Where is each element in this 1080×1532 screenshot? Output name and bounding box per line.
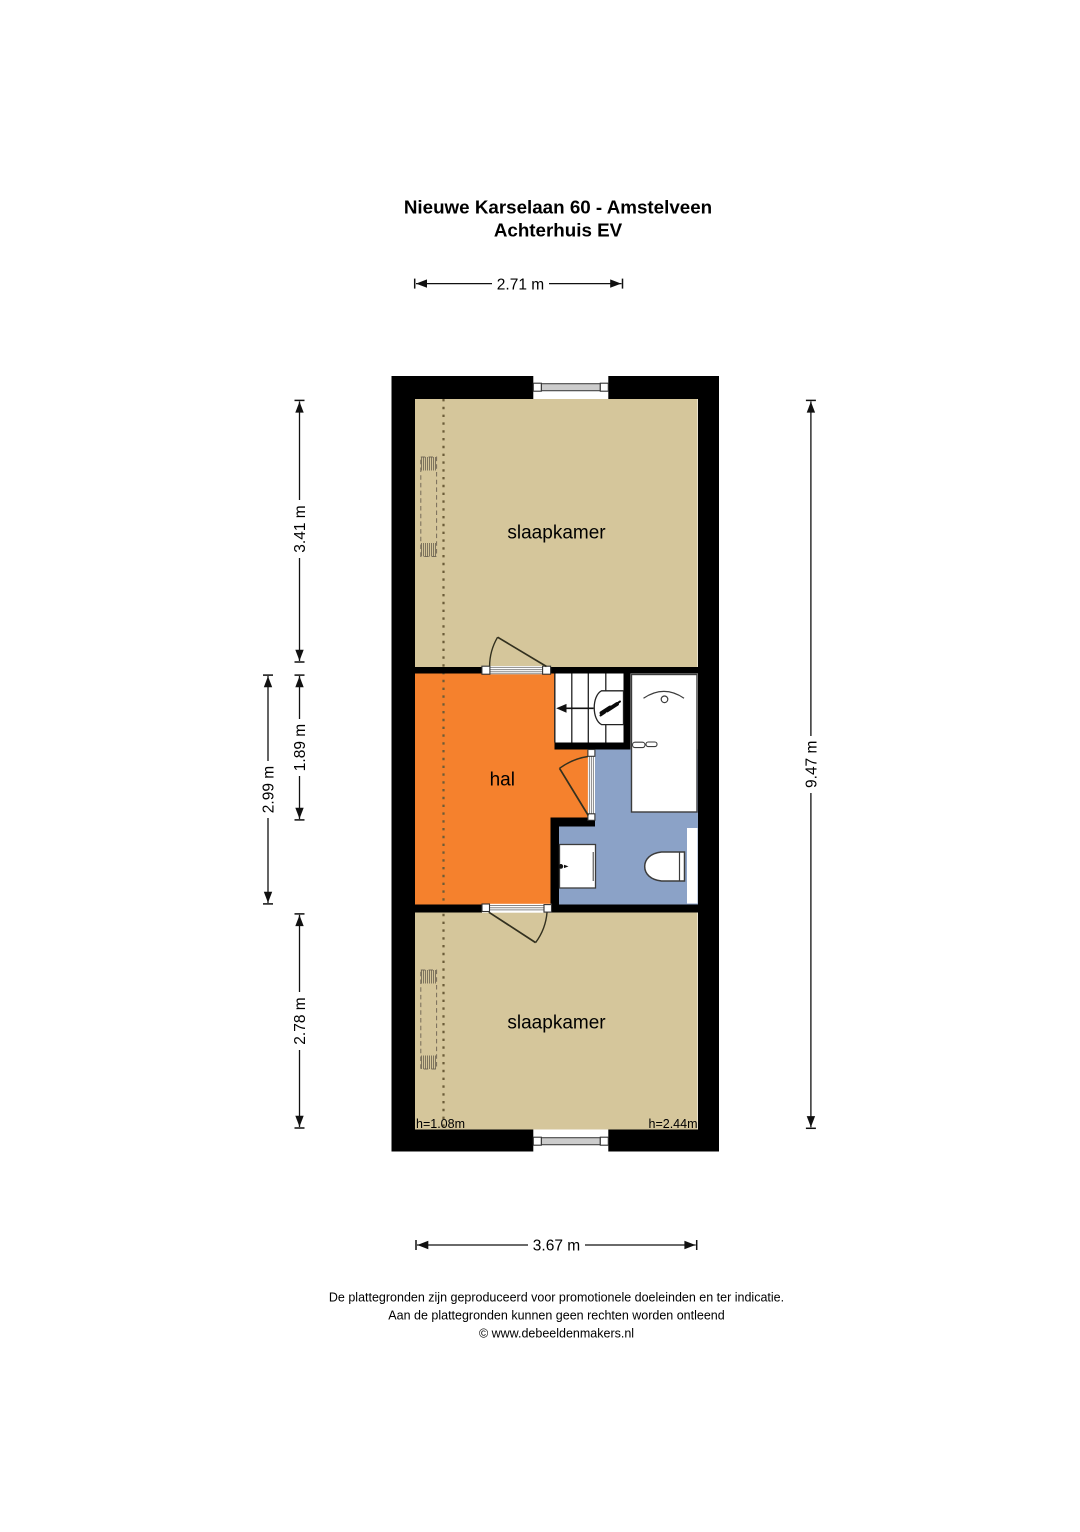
svg-text:© www.debeeldenmakers.nl: © www.debeeldenmakers.nl	[479, 1327, 634, 1341]
svg-text:3.67 m: 3.67 m	[533, 1238, 580, 1255]
svg-text:9.47 m: 9.47 m	[803, 741, 820, 788]
svg-text:h=2.44m: h=2.44m	[649, 1117, 698, 1131]
svg-text:hal: hal	[490, 770, 515, 791]
svg-text:2.71 m: 2.71 m	[497, 276, 544, 293]
svg-text:Nieuwe Karselaan 60 - Amstelve: Nieuwe Karselaan 60 - Amstelveen	[404, 197, 712, 218]
svg-text:slaapkamer: slaapkamer	[507, 1013, 606, 1034]
svg-text:Aan de plattegronden kunnen ge: Aan de plattegronden kunnen geen rechten…	[388, 1309, 724, 1323]
svg-text:1.89 m: 1.89 m	[292, 724, 309, 771]
svg-text:De plattegronden zijn geproduc: De plattegronden zijn geproduceerd voor …	[329, 1291, 784, 1305]
svg-text:2.99 m: 2.99 m	[261, 766, 278, 813]
svg-text:Achterhuis EV: Achterhuis EV	[494, 220, 623, 241]
svg-text:slaapkamer: slaapkamer	[507, 523, 606, 544]
svg-text:2.78 m: 2.78 m	[292, 997, 309, 1044]
svg-text:h=1.08m: h=1.08m	[416, 1117, 465, 1131]
svg-text:3.41 m: 3.41 m	[292, 505, 309, 552]
